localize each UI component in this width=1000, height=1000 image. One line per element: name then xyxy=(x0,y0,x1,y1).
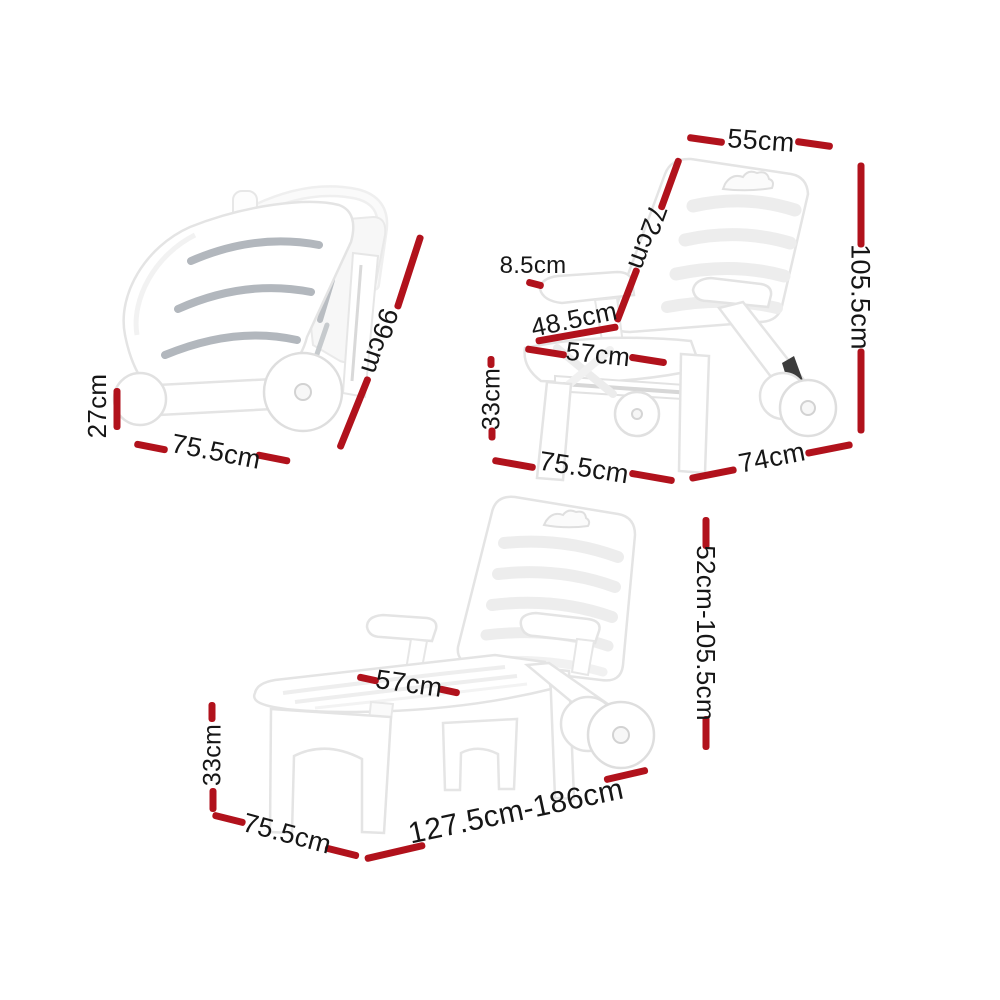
dimension-line xyxy=(858,349,865,434)
dim-chair-armrest-height-label: 8.5cm xyxy=(500,254,567,278)
dimension-line xyxy=(703,716,710,750)
dim-chair-backrest-width-label: 55cm xyxy=(727,125,796,157)
dimension-line xyxy=(858,163,865,248)
lounger-backrest xyxy=(458,497,635,681)
wheel-hub xyxy=(801,401,815,415)
dim-chair-overall-height-label: 105.5cm xyxy=(847,244,874,350)
dimension-line xyxy=(114,388,121,430)
dim-folded-height-label: 27cm xyxy=(84,374,110,439)
wheel-hub xyxy=(613,727,629,743)
dim-lounger-overall-height-label: 52cm-105.5cm xyxy=(693,545,719,721)
dimension-line xyxy=(488,356,495,368)
product-dimension-diagram: 27cm 75.5cm 99cm 55cm 72cm 8.5cm 48.5cm … xyxy=(0,0,1000,1000)
reclined-lounger-illustration xyxy=(205,487,750,852)
dim-chair-seat-width-label: 57cm xyxy=(564,338,631,371)
dimension-line xyxy=(210,788,217,812)
dimension-line xyxy=(209,702,216,722)
dimension-line xyxy=(687,134,726,146)
dimension-line xyxy=(703,517,710,549)
wheel-hub xyxy=(295,384,311,400)
wheel xyxy=(114,373,166,425)
dim-lounger-seat-height-label: 33cm xyxy=(201,724,226,786)
dim-chair-seat-height-label: 33cm xyxy=(480,368,505,430)
wheel-hub xyxy=(632,409,642,419)
